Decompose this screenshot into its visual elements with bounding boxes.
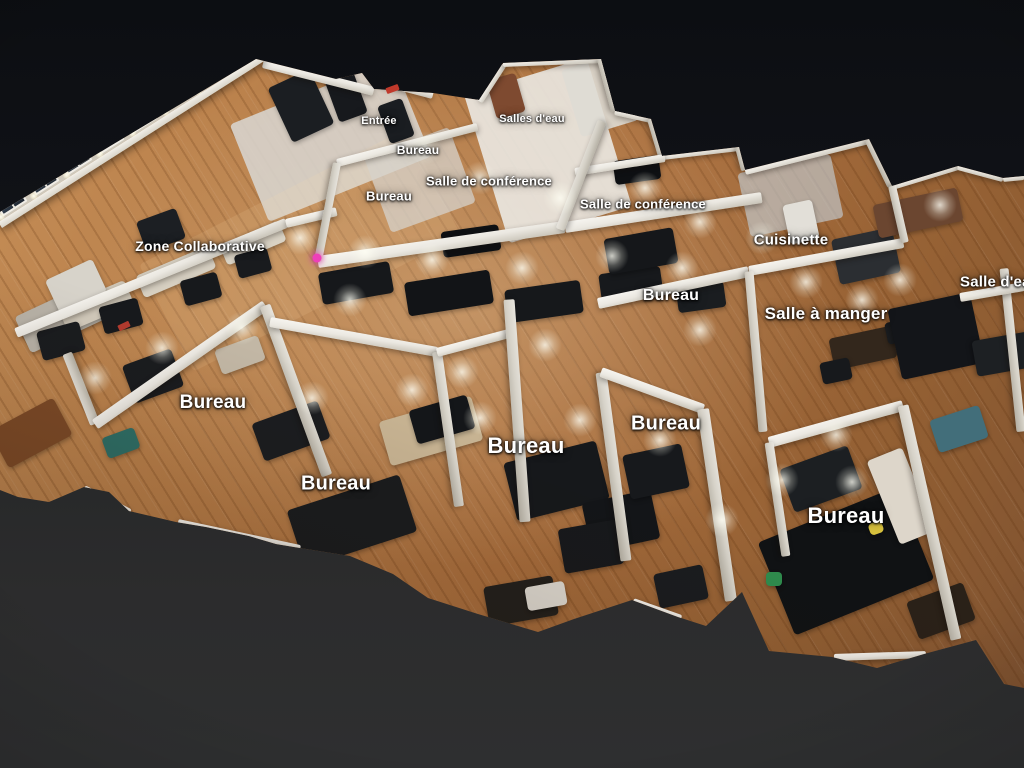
dollhouse-3d-viewport[interactable]: EntréeBureauSalles d'eauSalle de confére… (0, 0, 1024, 768)
room-label: Bureau (643, 287, 699, 305)
room-label: Bureau (366, 189, 412, 204)
room-label: Bureau (631, 413, 701, 436)
room-label: Salle de conférence (426, 174, 552, 189)
room-label: Bureau (488, 433, 565, 459)
room-label: Salles d'eau (499, 113, 565, 125)
room-label: Salle de conférence (580, 197, 706, 212)
room-label: Cuisinette (754, 232, 829, 249)
furniture-blob (558, 519, 625, 574)
mattertag-dot[interactable] (313, 254, 322, 263)
furniture-blob (766, 572, 782, 586)
room-label: Entrée (361, 115, 396, 127)
sconce-light (258, 44, 269, 55)
room-label: Bureau (301, 473, 371, 496)
room-label: Bureau (397, 143, 440, 157)
room-label: Zone Collaborative (135, 238, 265, 254)
room-label: Salle à manger (765, 304, 888, 324)
room-label: Bureau (808, 503, 885, 529)
room-label: Bureau (180, 392, 247, 414)
room-label: Salle d'eau (960, 274, 1024, 291)
